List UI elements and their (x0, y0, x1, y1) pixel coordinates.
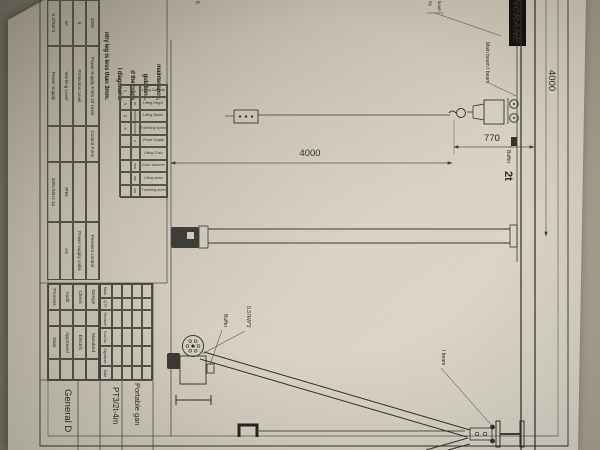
approvals-table: Design Standard Check Electric Audit App… (48, 283, 100, 380)
headroom-dimension: 770 (454, 120, 534, 154)
spec-header: Chain diameter (140, 160, 167, 172)
info-cell: Working Level (60, 46, 73, 126)
info-cell: A3 (60, 222, 73, 280)
info-cell (60, 126, 73, 162)
spec-value: 3 (119, 97, 131, 109)
beam-annotations: Buffer 2t Main beam I beam beam ng 6. (194, 1, 517, 181)
logo-text: ENCRANE (510, 0, 522, 44)
info-cell: 2000 (86, 0, 99, 46)
revision-header: Signature (99, 346, 112, 366)
caster-wheel-front (171, 227, 199, 248)
spec-unit: t (131, 85, 140, 97)
revision-table: Mark QTY Revised Doc.No Signature Date (100, 283, 153, 380)
revision-header: Date (99, 366, 112, 381)
info-cell: Power Supply (47, 46, 60, 126)
project-title: Portable gan (133, 383, 142, 450)
spec-header: Travelling Speed (140, 122, 167, 134)
approval-label: Process (47, 284, 60, 310)
spec-unit: mm (131, 160, 140, 172)
motor-label: 0.37kW*2 (245, 306, 251, 328)
approval-label: Standard (86, 326, 99, 359)
info-cell: 0.37kw*2 (47, 0, 60, 46)
spec-unit: kw (131, 172, 140, 184)
spec-header: Lifting Capacity (140, 85, 167, 97)
photo-of-technical-drawing: ENCRANE 4000 (0, 0, 600, 450)
info-cell: Power supply cable (73, 222, 86, 280)
spec-header: Lifting motor (140, 172, 167, 184)
travel-drive-caster (167, 336, 214, 406)
end-view-annotations: 0.37kW*2 Buffer I beam (202, 306, 493, 437)
doc-type: General D (62, 389, 73, 450)
buffer-label-1: Buffer (505, 150, 511, 164)
approval-label: Electric (73, 326, 86, 359)
hoist-trolley (449, 98, 518, 124)
info-cell (47, 126, 60, 162)
spec-value (119, 172, 131, 184)
fragment-label-2: ng (428, 1, 433, 6)
main-beam (517, 0, 535, 450)
approval-label: Audit (60, 284, 73, 310)
span-dimension-text: 4000 (546, 70, 557, 91)
spec-unit: m/min (131, 122, 140, 134)
end-view (200, 352, 524, 450)
info-cell (47, 222, 60, 280)
info-cell (73, 162, 86, 222)
revision-header: Revised (99, 310, 112, 328)
spec-header: Power Supply (140, 135, 167, 147)
approval-label: Date (47, 326, 60, 359)
fragment-label-1: beam (437, 1, 442, 12)
model-number: PT3/2t-4m (111, 387, 120, 450)
info-cell (86, 162, 99, 222)
spec-unit: v (131, 135, 140, 147)
info-cell: IP54 (60, 162, 73, 222)
span-dimension: 4000 (546, 0, 557, 236)
main-beam-label: Main beam I beam (484, 42, 490, 83)
spec-table: Lifting Capacity Lifting Height Lifting … (120, 84, 168, 198)
revision-header: QTY (99, 298, 112, 310)
info-cell: Control Form (86, 126, 99, 162)
spec-unit: m (131, 97, 140, 109)
height-dimension: 4000 (171, 148, 452, 163)
headroom-dimension-text: 770 (484, 133, 500, 144)
revision-header: Doc.No (99, 328, 112, 346)
info-cell (73, 126, 86, 162)
info-cell: 220v 50Hz 1p (47, 162, 60, 222)
spec-value (119, 147, 131, 159)
spec-value: 2 (119, 85, 131, 97)
spec-header: Travelling motor (140, 185, 167, 197)
info-table: 2000 Power Supply Form Of Hoist Control … (48, 0, 100, 280)
info-cell: 6 (73, 0, 86, 46)
gantry-leg (199, 225, 517, 248)
pendant-chain (225, 110, 450, 123)
info-cell: Power Supply Form Of Hoist (86, 46, 99, 126)
spec-header: Lifting Speed (140, 110, 167, 122)
revision-header: Mark (99, 284, 112, 298)
spec-header: Lifting Chain (140, 147, 167, 159)
spec-value (119, 185, 131, 197)
logo: ENCRANE (509, 0, 526, 46)
approval-label: Design (86, 284, 99, 310)
note-line: ntry leg is less than 3mm. (99, 0, 112, 100)
note-fragment: 6. (194, 1, 200, 5)
drawing-sheet-rotated: ENCRANE 4000 (0, 0, 600, 450)
buffer-label-2: Buffer (222, 314, 228, 328)
capacity-label: 2t (502, 171, 514, 181)
info-cell: 10 (60, 0, 73, 46)
height-dimension-text: 4000 (299, 148, 320, 159)
spec-value (119, 135, 131, 147)
spec-header: Lifting Height (140, 97, 167, 109)
spec-unit (131, 147, 140, 159)
approval-label: Approved (60, 326, 73, 359)
info-cell: Protection Level (73, 46, 86, 126)
info-cell: Pendent control (86, 222, 99, 280)
i-beam-label: I beam (440, 350, 446, 365)
approval-label: Check (73, 284, 86, 310)
hook-icon (239, 425, 257, 437)
spec-value: 8 (119, 122, 131, 134)
spec-unit: m/min (131, 110, 140, 122)
spec-value: 8 (119, 110, 131, 122)
spec-unit: kw (131, 185, 140, 197)
spec-value (119, 160, 131, 172)
